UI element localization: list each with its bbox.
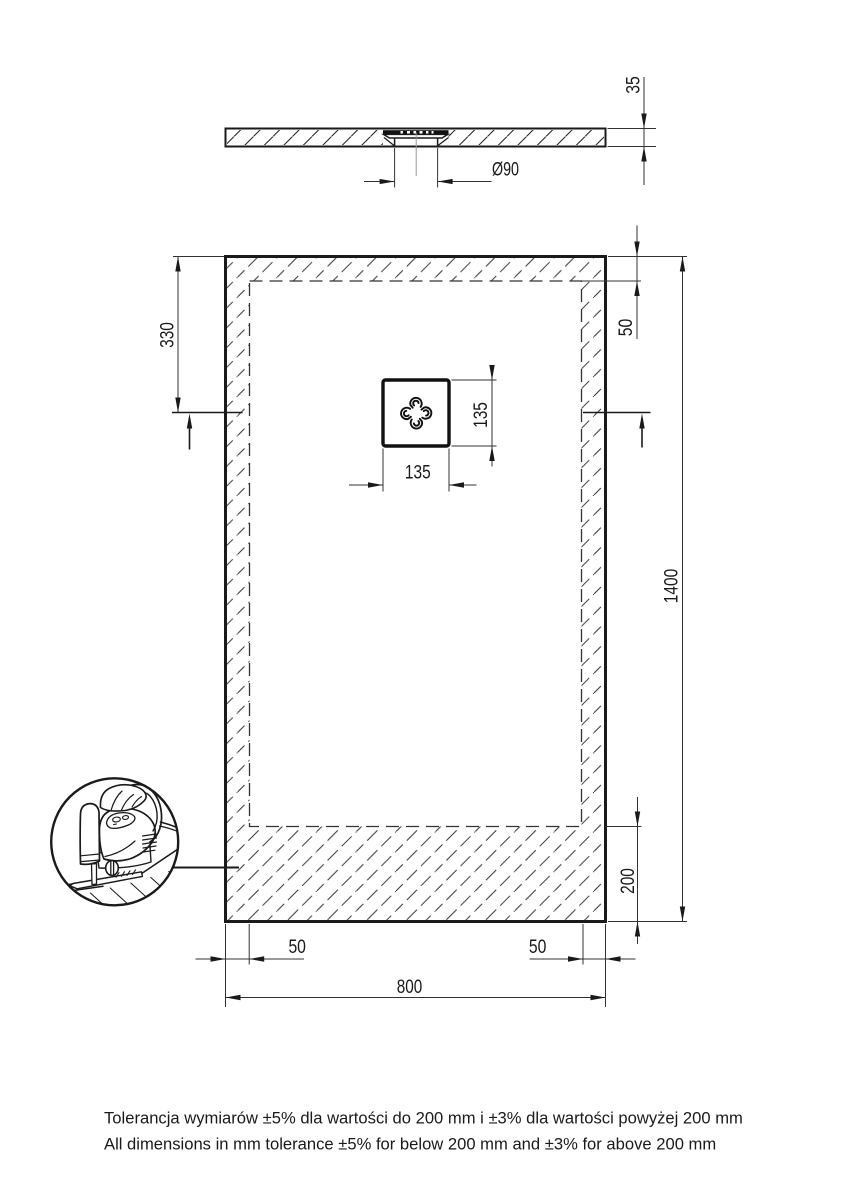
svg-text:50: 50 xyxy=(529,936,547,958)
svg-text:50: 50 xyxy=(615,319,637,337)
svg-text:200: 200 xyxy=(617,868,639,894)
svg-text:1400: 1400 xyxy=(661,569,683,604)
svg-text:135: 135 xyxy=(405,462,431,484)
svg-text:Ø90: Ø90 xyxy=(492,159,519,181)
svg-text:800: 800 xyxy=(397,976,423,998)
svg-text:330: 330 xyxy=(157,322,179,348)
svg-text:Tolerancja wymiarów ±5% dla wa: Tolerancja wymiarów ±5% dla wartości do … xyxy=(104,1109,743,1128)
svg-text:All dimensions in mm tolerance: All dimensions in mm tolerance ±5% for b… xyxy=(104,1135,716,1154)
svg-text:50: 50 xyxy=(288,936,306,958)
svg-text:135: 135 xyxy=(470,402,492,428)
svg-text:35: 35 xyxy=(623,76,645,94)
